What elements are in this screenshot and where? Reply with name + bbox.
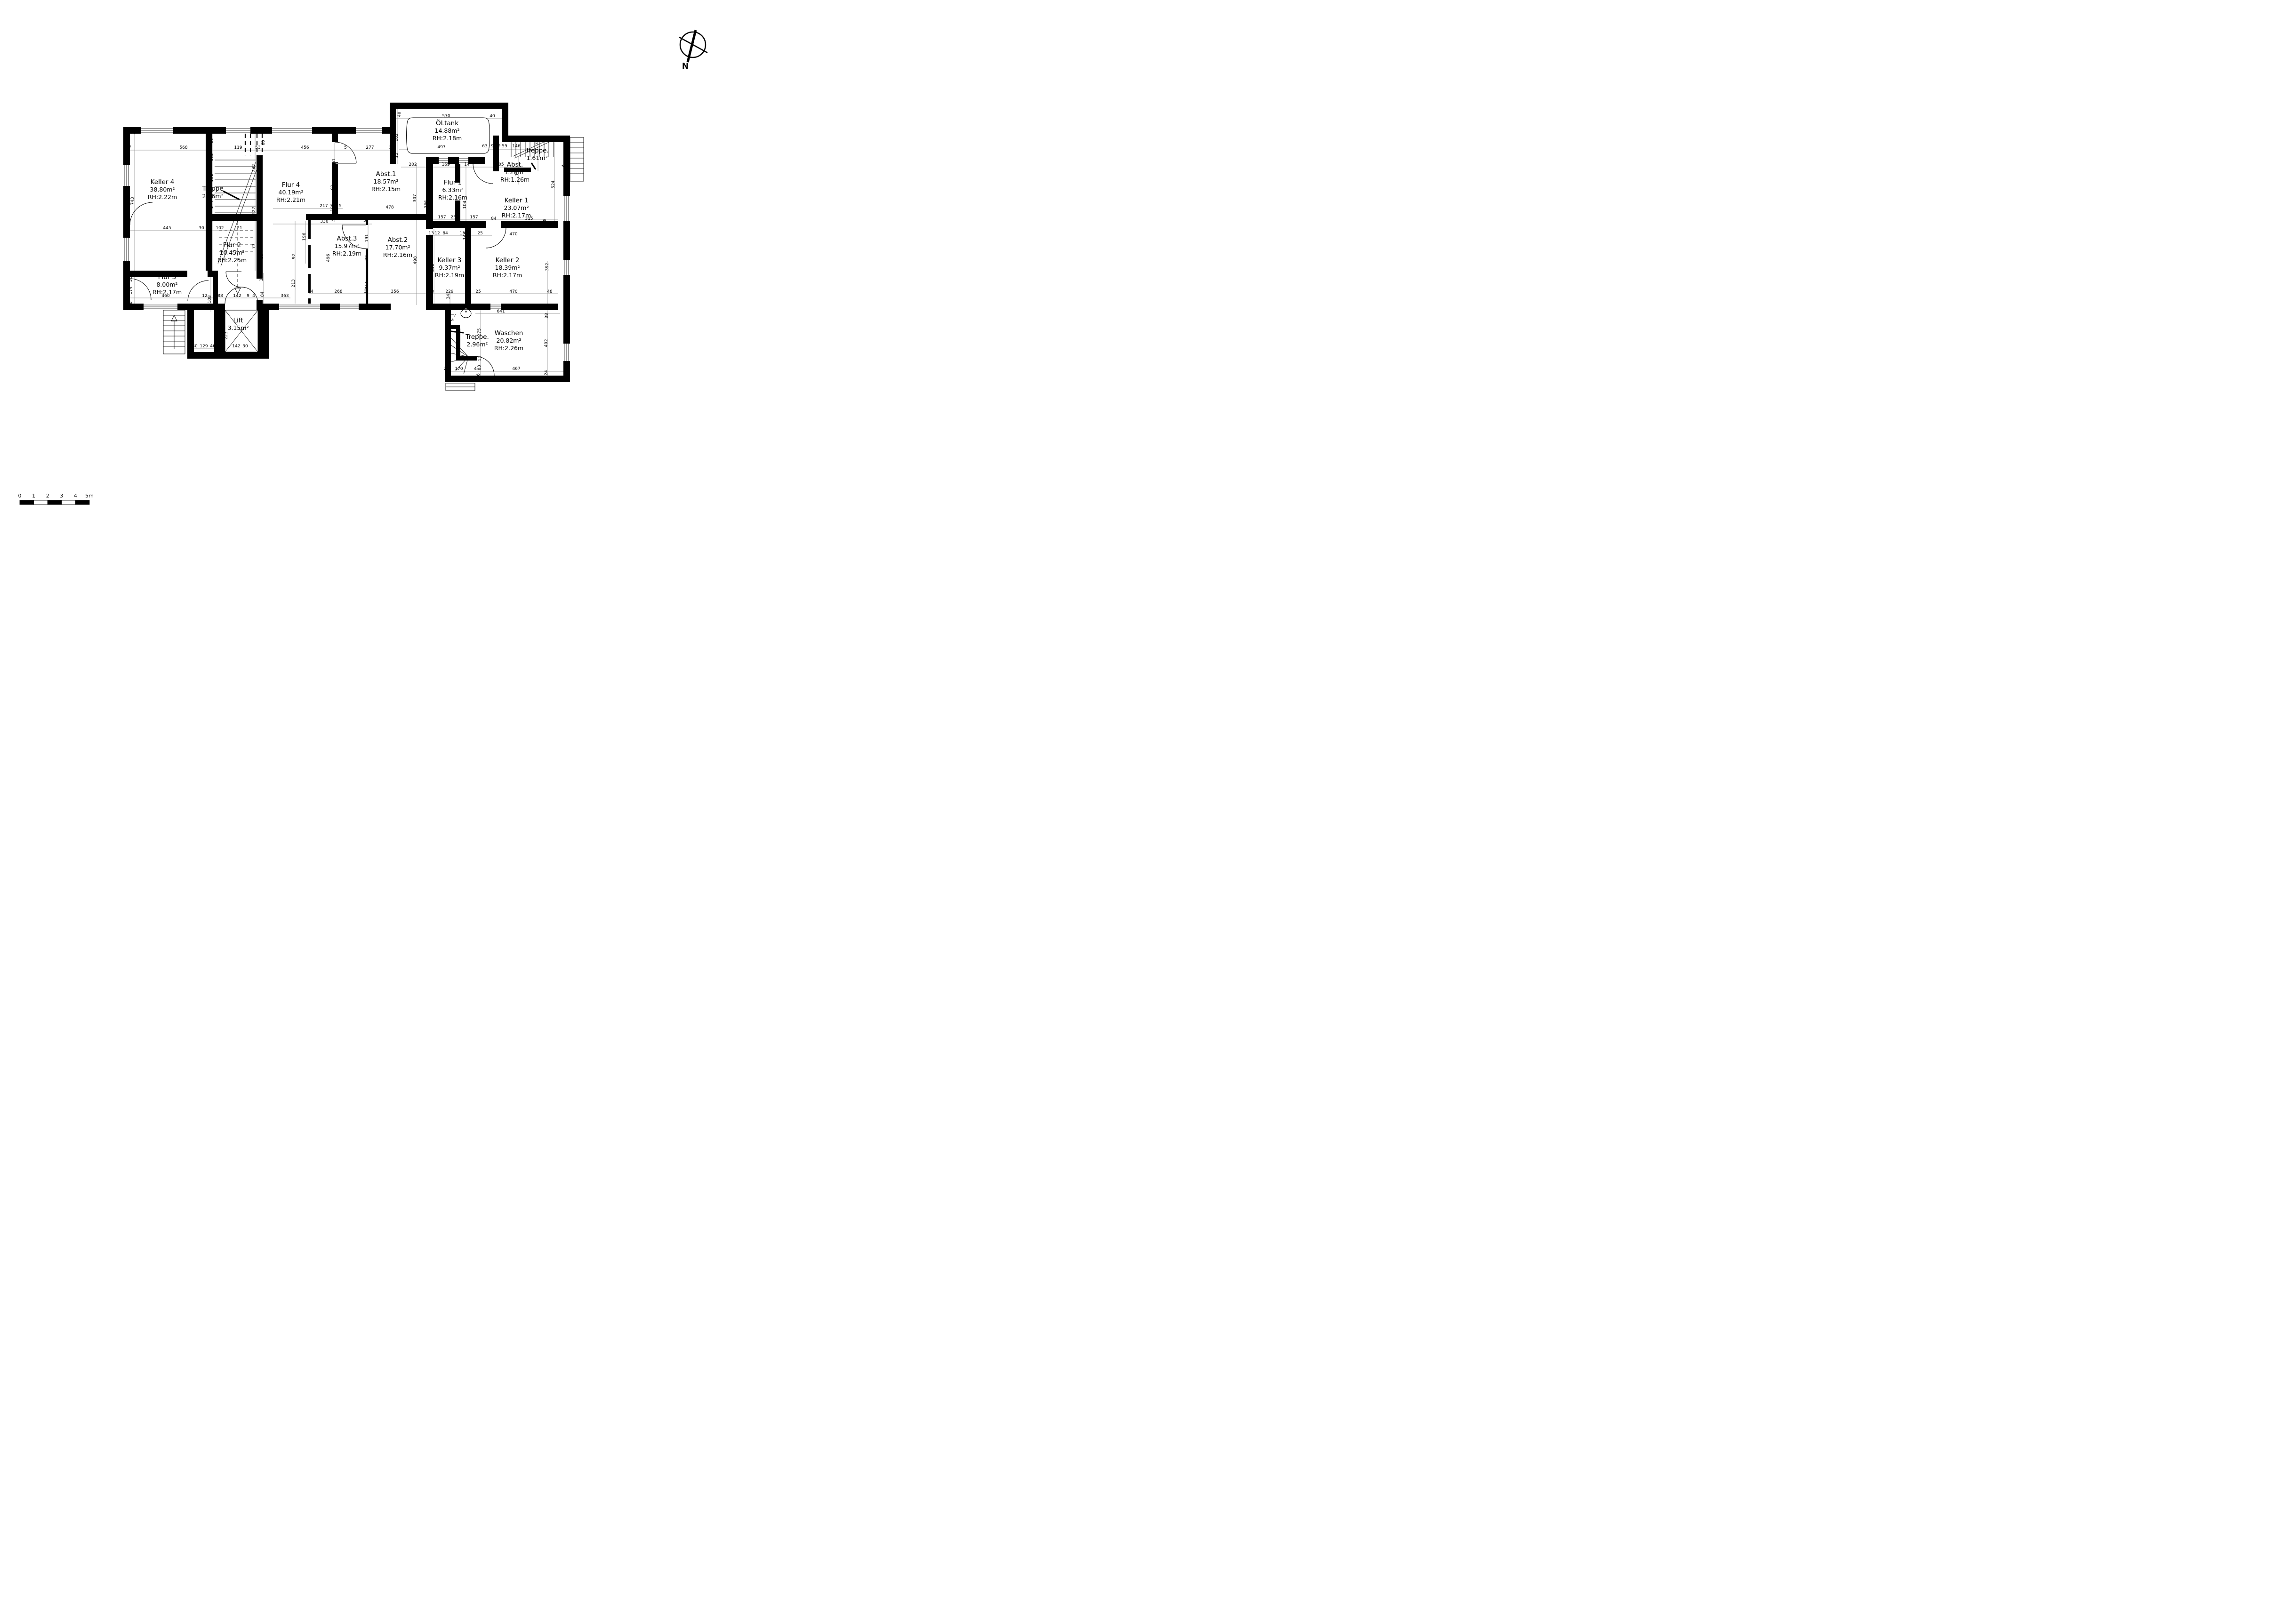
dimension-label: 84 [491, 217, 497, 221]
dimension-label: 229 [445, 289, 453, 294]
scale-bar-number: 2 [46, 493, 49, 499]
dimension-label: 30 [242, 344, 248, 349]
room-label: ÖLtank [436, 119, 458, 127]
dimension-label: 3 [363, 218, 366, 223]
dimension-label: 25 [477, 231, 482, 236]
dimension-label: 191 [365, 234, 369, 242]
scale-bar-labels: 012345m [18, 493, 94, 499]
dimension-label: 21 [237, 226, 242, 231]
dimension-label: 392 [545, 263, 550, 271]
room-label: Flur 3 [158, 273, 177, 281]
dimension-label: 213 [291, 279, 296, 287]
dimension-label: 38 [545, 313, 549, 319]
dimension-label: 59 [502, 144, 507, 149]
room-height-label: RH:2.18m [433, 135, 462, 142]
dimension-label: 30 [128, 276, 133, 282]
dimension-label: 25 [475, 289, 481, 294]
room-height-label: RH:2.22m [148, 193, 177, 200]
dimension-label: 5 [339, 204, 342, 209]
dimension-label: 30 [199, 226, 204, 231]
room-label: Abst.3 [337, 235, 357, 242]
room-label: Abst. [507, 161, 523, 168]
dimension-label: 10 [208, 303, 212, 309]
dimension-label: 63 [482, 144, 487, 149]
dimension-label: 101 [209, 174, 214, 182]
dimension-label: 5 [344, 145, 347, 150]
dimension-label: 40 [397, 112, 402, 117]
room-area-label: 1.61m² [526, 154, 547, 161]
dimension-label: 88 [217, 294, 223, 298]
window [563, 260, 570, 275]
dimension-label: 30 [209, 138, 214, 144]
room-area-label: 8.00m² [156, 281, 177, 288]
dimension-label: 60 [261, 140, 266, 145]
dimension-label: 38 [128, 301, 133, 307]
room-height-label: RH:2.16m [383, 251, 412, 258]
dimension-label: 470 [509, 232, 517, 237]
dimension-label: 470 [509, 289, 517, 294]
dimension-label: 217 [320, 204, 328, 209]
dimension-label: 498 [413, 256, 418, 264]
window [340, 304, 359, 310]
dimension-label: 53 [255, 145, 260, 150]
dimension-label: 336 [320, 219, 328, 224]
dimension-label: 13 [428, 289, 434, 294]
room-label: Flur 1 [444, 179, 462, 186]
dimension-label: 40 [490, 114, 495, 119]
room-height-label: RH:2.21m [276, 196, 305, 203]
dimension-label: 445 [163, 226, 171, 231]
dimension-label: 93 [365, 255, 369, 260]
room-label: Treppe. [465, 333, 489, 341]
dimension-label: 262 [394, 133, 399, 141]
dimension-label: 386 [424, 200, 429, 208]
window [123, 238, 130, 261]
room-area-label: 1.20m² [504, 168, 525, 176]
window [279, 304, 320, 310]
dimension-label: 251 [332, 158, 337, 166]
dimension-label: 363 [281, 294, 289, 298]
dimension-label: 570 [442, 114, 450, 119]
dimension-label: 142 [232, 344, 240, 349]
room-label: Keller 2 [496, 257, 520, 264]
dimension-label: 37 [126, 145, 131, 150]
dimension-label: 170 [455, 367, 463, 371]
dimension-label: 28 [543, 218, 547, 224]
dimension-label: 102 [216, 226, 224, 231]
dimension-label: 524 [551, 180, 556, 188]
dimension-label: 193 [209, 153, 214, 161]
dimension-label: 15 [394, 152, 399, 158]
dimension-label: 174 [209, 200, 214, 209]
dimension-label: 73 [252, 243, 257, 249]
room-label: Flur 2 [223, 241, 241, 249]
room-label: Keller 4 [151, 178, 175, 186]
room-area-label: 2.96m² [466, 341, 488, 348]
door [226, 272, 241, 287]
dimension-label: 11 [389, 145, 394, 150]
dimension-label: 92 [330, 184, 335, 190]
dimension-label: 174 [128, 286, 133, 294]
room-label: Keller 3 [438, 257, 462, 264]
dimension-label: 46 [210, 344, 216, 349]
dimension-label: 30 [131, 129, 136, 135]
window [356, 127, 382, 134]
scale-bar-number: 5m [85, 493, 94, 499]
room-label: Flur 4 [282, 181, 300, 189]
room-area-label: 17.70m² [385, 244, 410, 251]
room-height-label: RH:2.19m [435, 272, 464, 279]
dimension-label: 307 [413, 194, 417, 202]
room-height-label: RH:2.25m [217, 257, 247, 264]
dimension-label: 3 [364, 289, 367, 294]
room-label: Treppe. [525, 147, 549, 154]
external-stair-right [570, 137, 584, 181]
dimension-label: 102 [259, 273, 264, 281]
room-area-label: 10.45m² [220, 249, 245, 256]
dimension-label: 83 [477, 365, 482, 370]
dimension-label: 25 [450, 215, 456, 220]
dimension-label: 196 [302, 233, 307, 241]
dimension-label: 14 [464, 162, 470, 167]
dimension-label: 4 [252, 294, 255, 298]
room-area-label: 6.33m² [442, 186, 463, 193]
room-area-label: 20.82m² [497, 337, 522, 344]
room-height-label: RH:2.16m [438, 194, 467, 201]
compass: N [679, 30, 707, 71]
dimension-label: 157 [470, 215, 478, 220]
room-height-label: RH:2.19m [332, 250, 361, 257]
dimension-label: 497 [437, 145, 445, 150]
room-height-label: RH:2.17m [493, 272, 522, 279]
dimension-label: 268 [334, 289, 342, 294]
room-area-label: 18.39m² [495, 264, 520, 271]
dimension-label: 202 [409, 162, 417, 167]
dimension-label: 335 [207, 247, 211, 255]
window [563, 344, 570, 361]
room-label: Waschen [495, 329, 523, 337]
dimension-label: 92 [292, 254, 297, 259]
dimension-label: 568 [179, 145, 187, 150]
dimension-label: 30 [192, 344, 198, 349]
room-height-label: RH:2.26m [494, 345, 523, 352]
door [473, 164, 493, 184]
dimension-label: 227 [252, 207, 257, 215]
room-area-label: 2.86m² [202, 192, 223, 200]
dimension-label: 35 [535, 139, 539, 144]
dimension-label: 496 [326, 254, 331, 262]
floor-plan-canvas: N 012345m 375681195345652771163912591464… [0, 0, 727, 518]
window [272, 127, 312, 134]
dimension-label: 641 [497, 309, 505, 314]
room-label: Abst.2 [387, 236, 408, 244]
dimension-label: 4 [311, 289, 313, 294]
dimension-label: 84 [260, 291, 265, 297]
dimension-label: 4 [474, 367, 477, 371]
door [486, 228, 506, 248]
dimension-label: 34 [446, 294, 451, 299]
dimension-label: 214 [365, 281, 369, 289]
dashed-walls [245, 134, 262, 155]
dimension-label: 12 [434, 231, 440, 236]
dimension-label: 119 [234, 145, 242, 150]
dimension-label: 30 [209, 216, 214, 222]
window [123, 165, 130, 186]
dimension-label: 7 [425, 162, 428, 167]
dimension-label: 478 [385, 205, 393, 210]
dimension-label: 30 [224, 352, 229, 358]
dimension-label: 4 [330, 218, 335, 221]
dimension-label: 9 [491, 144, 494, 149]
dimension-label: 223 [224, 331, 229, 339]
room-label: Lift [233, 317, 243, 324]
room-area-label: 18.57m² [374, 178, 399, 185]
dimension-label: 743 [130, 197, 135, 205]
dimension-label: 405 [496, 162, 504, 167]
dimension-label: 33 [261, 308, 265, 313]
dimension-label: 265 [446, 349, 451, 357]
scale-bar-number: 3 [60, 493, 63, 499]
dimension-label: 169 [442, 162, 450, 167]
dimension-label: 133 [459, 231, 467, 236]
dimension-label: 164 [260, 251, 265, 259]
dimension-label: 40 [391, 114, 396, 119]
scale-bar: 012345m [18, 493, 94, 505]
room-area-label: 14.88m² [435, 127, 460, 134]
room-area-label: 3.15m² [227, 324, 249, 331]
dimension-label: 4 [366, 217, 371, 220]
dimension-label: 12 [495, 144, 500, 149]
dimension-label: 84 [442, 231, 448, 236]
door [130, 202, 153, 225]
window [226, 127, 250, 134]
room-label: Treppe [201, 185, 223, 192]
dimension-label: 467 [512, 367, 520, 371]
dimension-label: 356 [391, 289, 399, 294]
dimension-label: 242 [252, 164, 257, 172]
dimension-label: 29 [443, 367, 449, 371]
dimension-label: 129 [200, 344, 208, 349]
room-label: Keller 1 [505, 197, 529, 204]
room-height-label: RH:2.17m [502, 212, 531, 219]
dimension-label: 6 [476, 373, 481, 376]
dimension-label: 104 [463, 200, 467, 209]
dimension-label: 13 [428, 231, 434, 236]
room-area-label: 9.37m² [439, 264, 460, 271]
scale-bar-number: 0 [18, 493, 22, 499]
dimension-label: 402 [544, 339, 549, 347]
room-height-label: RH:2.17m [153, 289, 182, 296]
dimension-label: 108 [208, 295, 212, 303]
scale-bar-number: 4 [74, 493, 77, 499]
dimension-label: 24 [544, 370, 549, 376]
dimension-label: 15 [478, 356, 482, 361]
dimension-label: 104 [447, 315, 451, 323]
dimension-label: 157 [438, 215, 446, 220]
room-label: Abst.1 [376, 170, 396, 178]
compass-north-label: N [682, 62, 689, 71]
dimension-label: 146 [512, 144, 520, 149]
dimension-label: 108 [330, 203, 335, 211]
room-height-label: RH:2.15m [371, 185, 401, 192]
dimension-label: 410 [431, 264, 435, 272]
external-stair-bottom-left [163, 310, 185, 354]
window [144, 304, 177, 310]
room-area-label: 38.80m² [150, 186, 175, 193]
floorplan-page: N 012345m 375681195345652771163912591464… [0, 0, 727, 518]
dimension-label: 48 [547, 289, 553, 294]
dimension-label: 12 [202, 294, 207, 298]
room-area-label: 23.07m² [504, 204, 529, 211]
dimension-label: 456 [301, 145, 309, 150]
room-height-label: RH:1.26m [500, 176, 530, 183]
dimension-label: 9 [247, 294, 249, 298]
dimension-label: 142 [233, 294, 241, 298]
dimension-label: 10 [447, 323, 451, 329]
window [141, 127, 173, 134]
scale-bar-number: 1 [32, 493, 35, 499]
window [563, 196, 570, 221]
dimension-label: 277 [366, 145, 374, 150]
room-area-label: 15.97m² [335, 242, 360, 249]
room-area-label: 40.19m² [279, 189, 304, 196]
